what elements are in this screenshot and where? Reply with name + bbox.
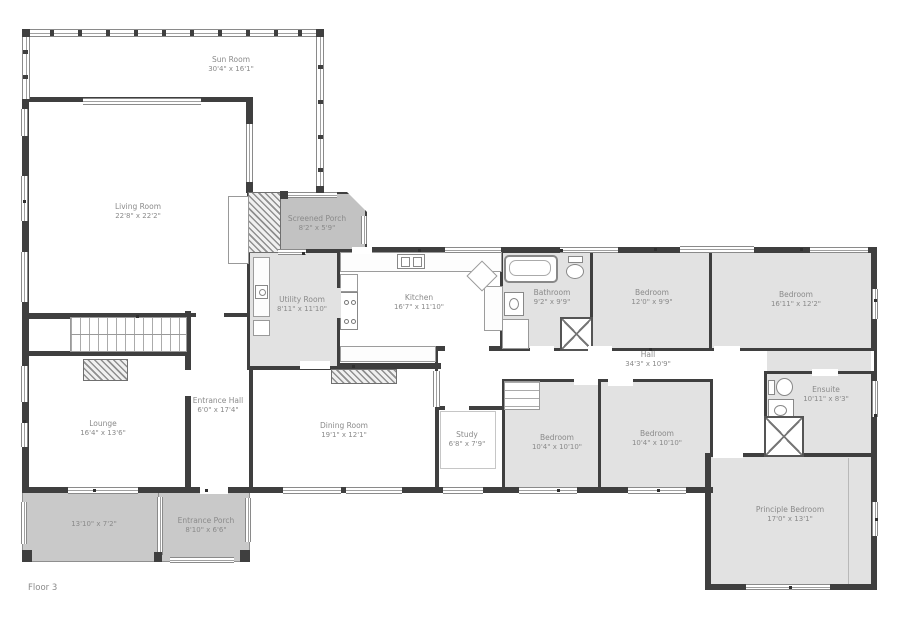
window <box>283 487 341 494</box>
window <box>21 176 28 221</box>
wall-post <box>50 30 54 36</box>
hatched-area <box>83 359 128 381</box>
dimension-tick <box>560 249 563 252</box>
dimension-tick <box>789 586 792 589</box>
window <box>246 124 253 182</box>
wall-post <box>318 135 323 139</box>
bathtub-icon <box>504 255 558 283</box>
door-opening <box>300 361 330 369</box>
wall-segment <box>705 453 711 590</box>
wall-post <box>318 65 323 69</box>
wall-post <box>154 552 162 562</box>
wall-post <box>22 29 30 37</box>
wall-post <box>106 30 110 36</box>
window <box>21 109 28 136</box>
window <box>22 29 324 37</box>
room-entrance-hall <box>185 313 253 493</box>
window <box>21 252 28 302</box>
wall-post <box>23 50 28 54</box>
wall-post <box>240 550 250 562</box>
window <box>22 29 30 99</box>
door-opening <box>334 288 341 318</box>
window <box>433 371 440 407</box>
door-opening <box>184 370 192 396</box>
sink-icon <box>255 285 268 299</box>
window <box>287 192 337 198</box>
window <box>746 584 830 590</box>
window <box>872 289 878 319</box>
door-opening <box>352 247 372 254</box>
wall-post <box>318 168 323 172</box>
dimension-tick <box>93 489 96 492</box>
wall-post <box>22 550 32 562</box>
fixture-box <box>340 274 358 292</box>
window <box>21 423 28 447</box>
window <box>519 487 577 494</box>
desk-outline <box>440 411 496 469</box>
door-opening <box>608 379 633 386</box>
dimension-tick <box>654 248 657 251</box>
dimension-tick <box>657 489 660 492</box>
dimension-tick <box>557 489 560 492</box>
window <box>245 498 251 542</box>
counter <box>484 286 503 331</box>
room-entrance-porch <box>158 490 250 562</box>
room-bedroom-1 <box>590 250 712 351</box>
dimension-tick <box>649 348 652 351</box>
wall-post <box>246 30 250 36</box>
dimension-tick <box>800 248 803 251</box>
room-living-room <box>22 97 253 318</box>
room-bedroom-4 <box>598 379 713 493</box>
floor-label: Floor 3 <box>28 583 57 593</box>
dimension-tick <box>302 252 305 255</box>
wall-post <box>134 30 138 36</box>
staircase-icon <box>70 317 187 352</box>
wall-post <box>78 30 82 36</box>
window <box>560 247 618 253</box>
window <box>872 381 878 417</box>
window <box>21 502 27 544</box>
dimension-tick <box>875 518 878 521</box>
shower-icon <box>764 416 804 457</box>
wall-post <box>218 30 222 36</box>
dimension-tick <box>205 489 208 492</box>
dimension-tick <box>23 420 26 423</box>
dimension-tick <box>352 365 355 368</box>
fixture-box <box>502 319 529 349</box>
dimension-tick <box>418 249 421 252</box>
room-principle-bedroom <box>705 453 877 590</box>
hatched-area <box>331 369 397 384</box>
room-screened-porch <box>279 192 367 253</box>
closet-divider-line <box>848 458 849 584</box>
dimension-tick <box>874 414 877 417</box>
wall-post <box>162 30 166 36</box>
window <box>68 487 138 494</box>
window <box>445 247 501 253</box>
door-opening <box>445 404 469 411</box>
window <box>810 247 868 253</box>
window <box>21 366 28 402</box>
window <box>680 246 754 253</box>
dimension-tick <box>136 315 139 318</box>
sink-icon <box>504 292 524 316</box>
door-opening <box>530 346 554 354</box>
wall-post <box>316 186 324 193</box>
stove-icon <box>340 292 358 330</box>
wall-post <box>190 30 194 36</box>
toilet-icon <box>565 256 586 280</box>
window <box>157 497 163 555</box>
floor-plan: Sun Room30'4" x 16'1"Living Room22'8" x … <box>0 0 900 642</box>
door-opening <box>713 450 743 458</box>
wall-post <box>274 30 278 36</box>
dimension-tick <box>23 200 26 203</box>
door-opening <box>588 346 612 354</box>
fixture-box <box>228 196 249 264</box>
door-opening <box>445 344 489 352</box>
door-opening <box>196 311 224 319</box>
wall-post <box>298 30 302 36</box>
dimension-tick <box>874 299 877 302</box>
wall-post <box>316 29 324 37</box>
wall-post <box>280 191 288 199</box>
room-porch <box>22 490 163 562</box>
wall-post <box>318 100 323 104</box>
wall-post <box>23 75 28 79</box>
window <box>83 98 201 105</box>
fixture-box <box>253 320 270 336</box>
window <box>443 487 483 494</box>
window <box>361 216 367 244</box>
window <box>170 557 234 563</box>
hatched-area <box>248 192 281 253</box>
counter <box>340 346 436 362</box>
door-opening <box>714 346 740 354</box>
kitchen-sink-icon <box>397 254 425 269</box>
door-opening <box>812 369 838 376</box>
closet-shelves-icon <box>504 381 540 410</box>
room-bedroom-2 <box>709 250 877 351</box>
door-opening <box>574 378 598 385</box>
window <box>346 487 402 494</box>
toilet-icon <box>768 377 794 398</box>
